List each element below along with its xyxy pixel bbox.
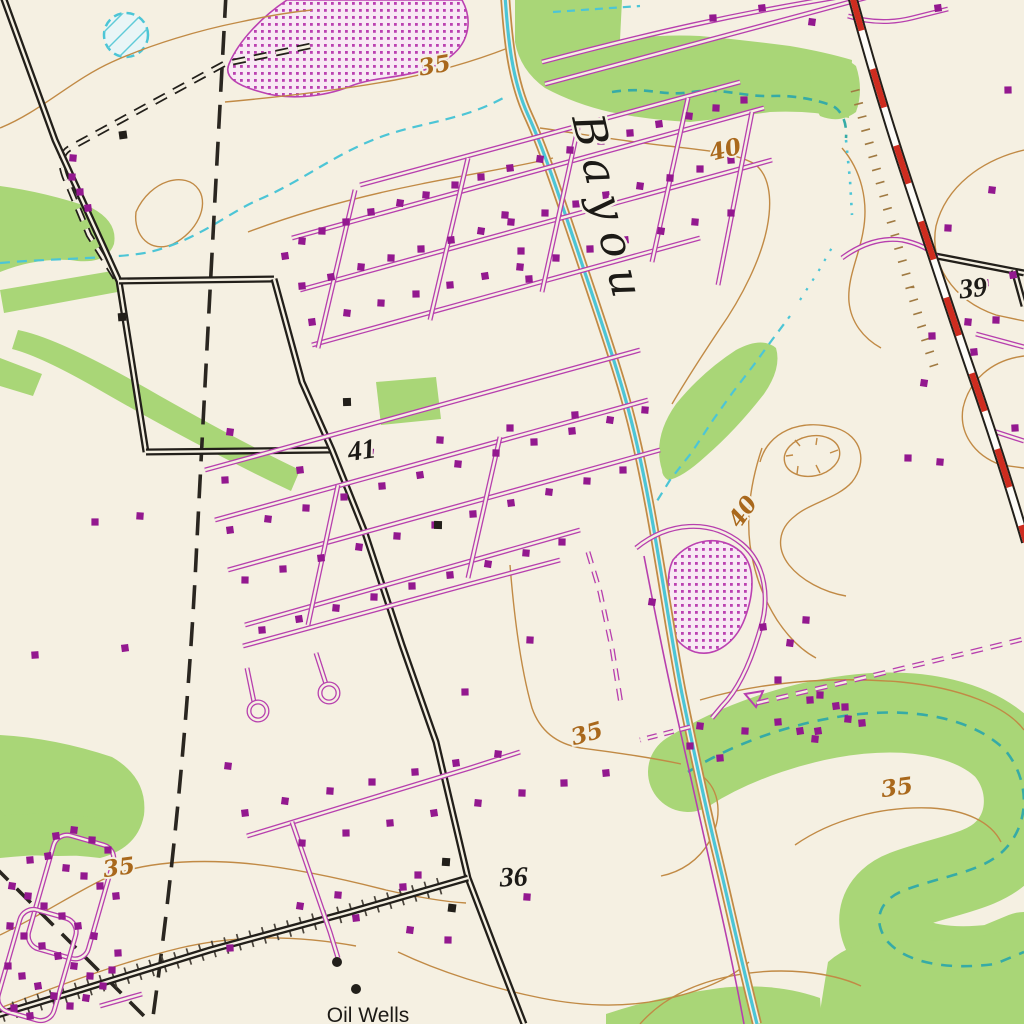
building <box>84 204 92 212</box>
building <box>6 922 14 930</box>
building <box>82 994 90 1002</box>
building <box>686 742 693 749</box>
building <box>399 883 407 891</box>
building <box>24 892 32 900</box>
building <box>31 651 39 659</box>
building <box>444 936 451 943</box>
building <box>80 872 87 879</box>
building <box>58 912 66 920</box>
building <box>808 18 816 26</box>
building <box>741 727 749 735</box>
building <box>1009 271 1017 279</box>
building <box>121 644 129 652</box>
building <box>992 316 999 323</box>
building <box>99 982 107 990</box>
building-black <box>448 904 457 913</box>
building <box>422 191 430 199</box>
building <box>327 273 335 281</box>
building <box>70 826 78 834</box>
building <box>367 208 375 216</box>
building <box>774 718 782 726</box>
building <box>334 891 342 899</box>
building <box>66 1002 73 1009</box>
building <box>317 554 325 562</box>
building <box>802 616 810 624</box>
building <box>281 252 289 260</box>
building <box>522 549 530 557</box>
building <box>20 932 27 939</box>
building <box>970 348 978 356</box>
building <box>355 543 363 551</box>
building <box>74 922 82 930</box>
building <box>858 719 866 727</box>
intermittent-streams <box>0 6 1024 966</box>
building <box>568 427 576 435</box>
building <box>447 236 455 244</box>
building <box>796 727 804 735</box>
building <box>436 436 444 444</box>
building <box>560 779 567 786</box>
building <box>541 209 548 216</box>
building <box>296 902 304 910</box>
building <box>964 318 972 326</box>
building <box>928 332 935 339</box>
building <box>558 538 565 545</box>
building <box>302 504 310 512</box>
building <box>411 768 419 776</box>
building <box>452 759 460 767</box>
building <box>357 263 365 271</box>
building <box>224 762 232 770</box>
building <box>636 182 644 190</box>
building <box>221 476 229 484</box>
building <box>759 623 767 631</box>
building-black <box>442 858 451 867</box>
building <box>506 424 513 431</box>
building <box>343 309 351 317</box>
building <box>90 932 98 940</box>
building <box>454 460 462 468</box>
building <box>416 471 424 479</box>
building <box>523 893 531 901</box>
building <box>446 281 454 289</box>
building <box>844 715 852 723</box>
building <box>934 4 942 12</box>
building <box>342 829 349 836</box>
building <box>258 626 266 634</box>
building <box>226 428 234 436</box>
building <box>430 809 438 817</box>
building <box>530 438 537 445</box>
building <box>811 735 819 743</box>
bayou-label: Bayou <box>561 108 656 314</box>
building <box>412 290 419 297</box>
building <box>461 688 468 695</box>
building <box>518 789 525 796</box>
building <box>1011 424 1019 432</box>
building <box>691 218 699 226</box>
building <box>507 499 515 507</box>
building <box>492 449 499 456</box>
building <box>507 218 515 226</box>
building <box>86 972 94 980</box>
building <box>226 944 234 952</box>
building <box>393 532 401 540</box>
building <box>342 218 349 225</box>
building <box>332 604 340 612</box>
spot-elevation-39: 39 <box>957 272 989 306</box>
building <box>920 379 928 387</box>
building <box>451 181 458 188</box>
building <box>814 727 822 735</box>
building <box>326 787 334 795</box>
building <box>241 809 249 817</box>
contour-label-40-mid: 40 <box>723 491 763 533</box>
building <box>264 515 272 523</box>
building <box>712 104 720 112</box>
building <box>832 702 840 710</box>
building <box>619 466 626 473</box>
building <box>26 1012 34 1020</box>
building <box>52 832 60 840</box>
building <box>716 754 724 762</box>
building <box>506 164 514 172</box>
oil-wells-label: Oil Wells <box>327 1004 409 1024</box>
building <box>136 512 144 520</box>
building <box>38 942 46 950</box>
building <box>526 636 534 644</box>
contour-label-35-top: 35 <box>417 50 453 82</box>
contour-label-40-upper: 40 <box>706 133 744 167</box>
building <box>727 209 734 216</box>
building <box>536 155 544 163</box>
building <box>552 254 559 261</box>
building <box>108 966 115 973</box>
building <box>408 582 415 589</box>
building <box>340 493 347 500</box>
building <box>352 914 360 922</box>
building <box>308 318 316 326</box>
building <box>296 466 304 474</box>
building-black <box>343 398 351 406</box>
building <box>696 722 704 730</box>
building <box>40 902 47 909</box>
building <box>516 263 524 271</box>
building <box>517 247 524 254</box>
building <box>806 696 814 704</box>
building <box>4 962 11 969</box>
building <box>786 639 794 647</box>
building <box>378 482 386 490</box>
building <box>944 224 952 232</box>
building <box>68 173 75 180</box>
building <box>936 458 944 466</box>
building <box>112 892 120 900</box>
building <box>545 488 553 496</box>
building <box>774 676 781 683</box>
contour-label-35-right: 35 <box>879 772 914 803</box>
building <box>469 510 477 518</box>
building <box>368 778 375 785</box>
depression-contour <box>780 431 843 482</box>
building <box>70 962 78 970</box>
building <box>626 129 634 137</box>
building <box>295 615 303 623</box>
building <box>69 154 77 162</box>
building-black <box>118 130 127 139</box>
contour-label-35-mid: 35 <box>568 716 606 751</box>
building <box>571 411 579 419</box>
building <box>18 972 26 980</box>
building <box>816 691 823 698</box>
building <box>474 799 482 807</box>
building <box>709 14 717 22</box>
contour-label-35-left: 35 <box>101 852 136 883</box>
building <box>602 769 610 777</box>
building <box>10 1004 17 1011</box>
building <box>477 173 485 181</box>
building <box>481 272 489 280</box>
building <box>396 199 404 207</box>
oil-well-dot <box>351 984 361 994</box>
building <box>1004 86 1011 93</box>
building <box>655 120 663 128</box>
building <box>904 454 911 461</box>
building <box>370 593 377 600</box>
building <box>685 112 693 120</box>
building <box>641 406 649 414</box>
building <box>841 703 848 710</box>
building <box>298 839 306 847</box>
building <box>414 871 421 878</box>
building <box>62 864 70 872</box>
building <box>387 254 394 261</box>
building <box>44 852 52 860</box>
building <box>226 526 234 534</box>
building <box>606 416 614 424</box>
building <box>501 211 509 219</box>
building <box>34 982 42 990</box>
building-black <box>118 313 127 322</box>
building <box>298 237 306 245</box>
building <box>572 200 580 208</box>
oil-well-dots <box>332 957 361 994</box>
building <box>54 952 62 960</box>
building <box>740 96 747 103</box>
building <box>318 227 325 234</box>
building <box>417 245 424 252</box>
building <box>525 275 533 283</box>
building <box>8 882 16 890</box>
building <box>406 926 414 934</box>
building <box>386 819 394 827</box>
building <box>104 846 111 853</box>
building <box>377 299 385 307</box>
building-black <box>434 521 442 529</box>
building <box>494 750 502 758</box>
building <box>758 4 766 12</box>
building <box>446 571 454 579</box>
topo-map: Bayou354039414035353536Oil Wells <box>0 0 1024 1024</box>
building <box>484 560 492 568</box>
building <box>657 227 665 235</box>
building <box>50 992 58 1000</box>
building <box>114 949 122 957</box>
spot-elevation-41: 41 <box>345 433 378 468</box>
building <box>583 477 591 485</box>
building <box>298 282 306 290</box>
building <box>477 227 485 235</box>
building <box>988 186 996 194</box>
oil-well-dot <box>332 957 342 967</box>
building <box>281 797 289 805</box>
building <box>666 174 674 182</box>
building <box>279 565 287 573</box>
building <box>241 576 248 583</box>
topo-map-canvas[interactable]: Bayou354039414035353536Oil Wells <box>0 0 1024 1024</box>
building <box>648 598 656 606</box>
building <box>88 836 96 844</box>
building <box>96 882 103 889</box>
building <box>696 165 703 172</box>
building <box>26 856 34 864</box>
spot-elevation-36: 36 <box>498 862 528 894</box>
building <box>76 188 84 196</box>
building <box>91 518 98 525</box>
